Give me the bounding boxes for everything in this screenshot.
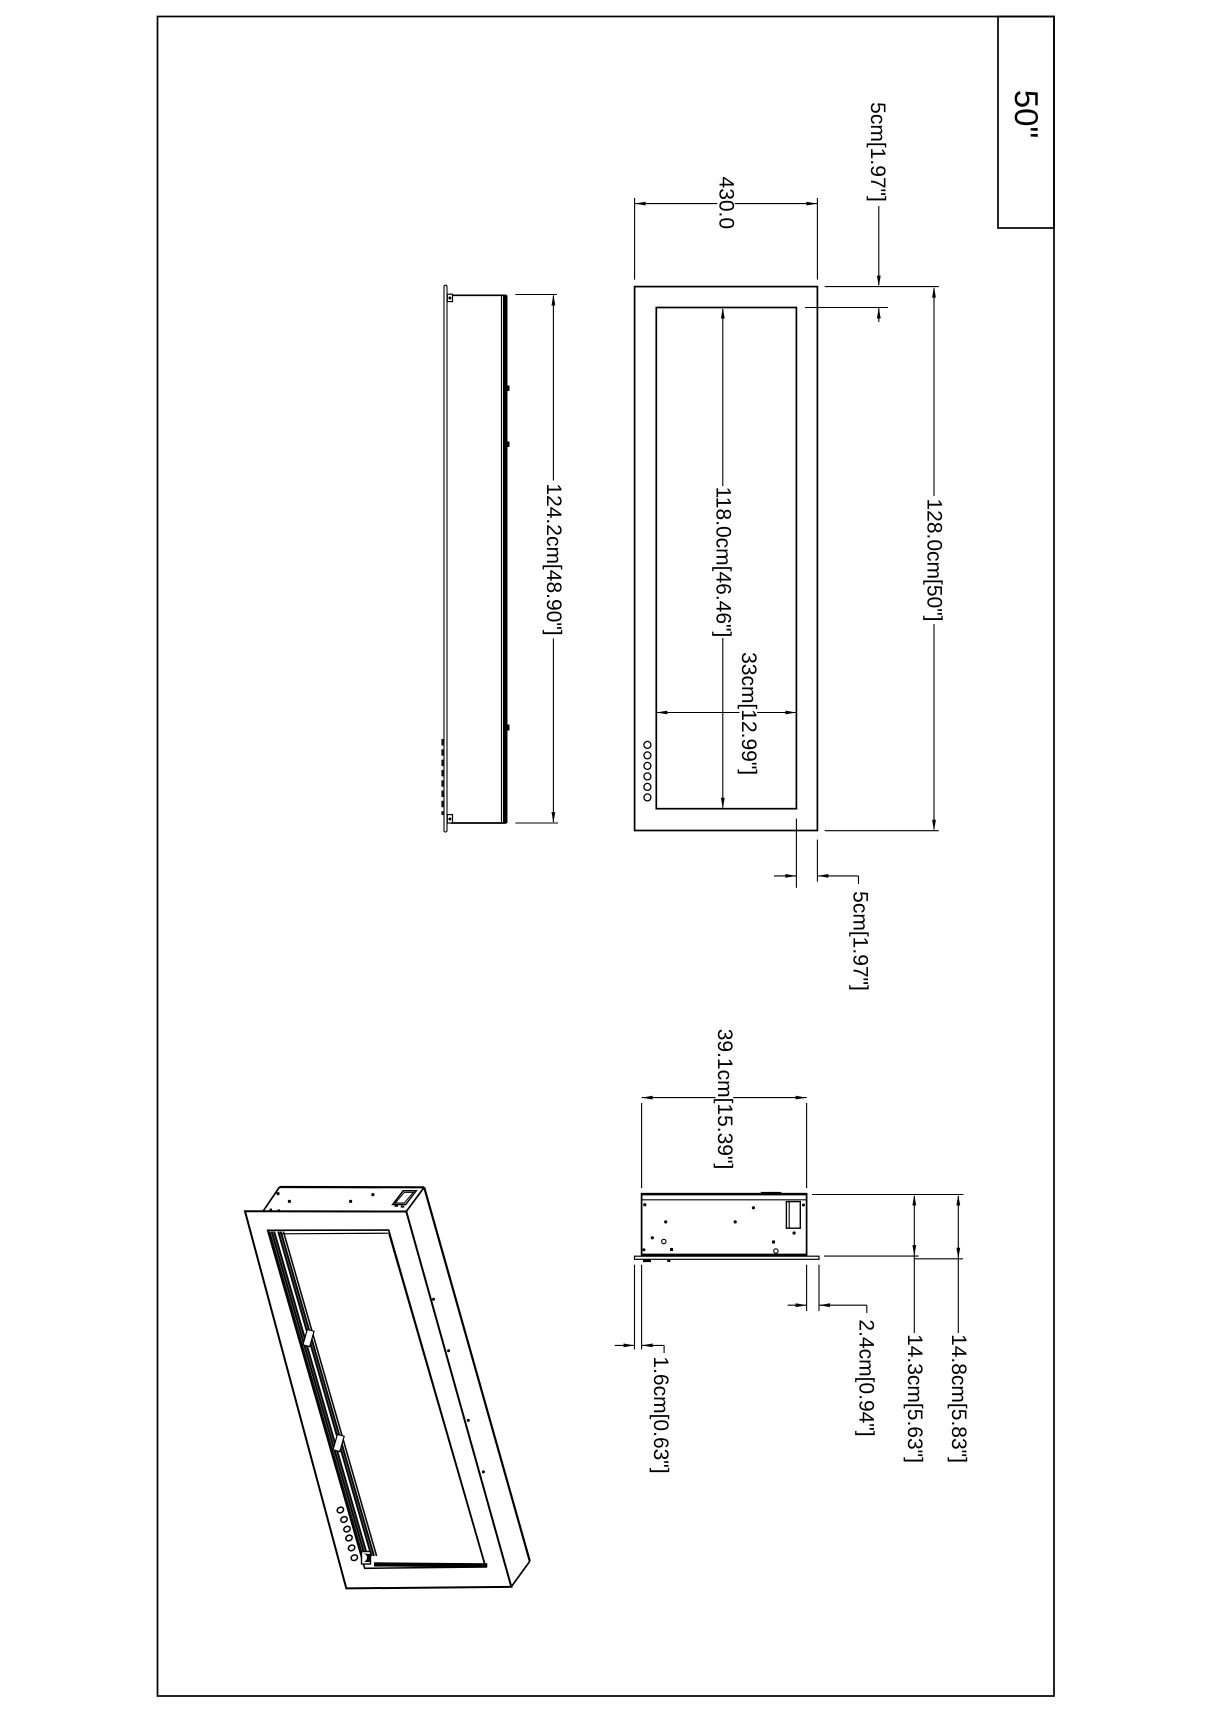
svg-text:14.8cm[5.83"]: 14.8cm[5.83"] <box>947 1334 970 1463</box>
svg-text:33cm[12.99"]: 33cm[12.99"] <box>737 652 760 775</box>
svg-text:128.0cm[50"]: 128.0cm[50"] <box>923 498 946 621</box>
svg-text:124.2cm[48.90"]: 124.2cm[48.90"] <box>542 483 565 635</box>
svg-text:14.3cm[5.63"]: 14.3cm[5.63"] <box>903 1334 926 1463</box>
svg-text:430.0: 430.0 <box>715 177 738 230</box>
svg-text:118.0cm[46.46"]: 118.0cm[46.46"] <box>711 487 734 638</box>
svg-text:1.6cm[0.63"]: 1.6cm[0.63"] <box>649 1356 672 1473</box>
svg-text:5cm[1.97"]: 5cm[1.97"] <box>849 891 872 991</box>
svg-text:2.4cm[0.94"]: 2.4cm[0.94"] <box>855 1319 878 1436</box>
svg-text:5cm[1.97"]: 5cm[1.97"] <box>866 102 889 202</box>
svg-text:50": 50" <box>1008 90 1045 138</box>
svg-text:39.1cm[15.39"]: 39.1cm[15.39"] <box>713 1029 736 1170</box>
